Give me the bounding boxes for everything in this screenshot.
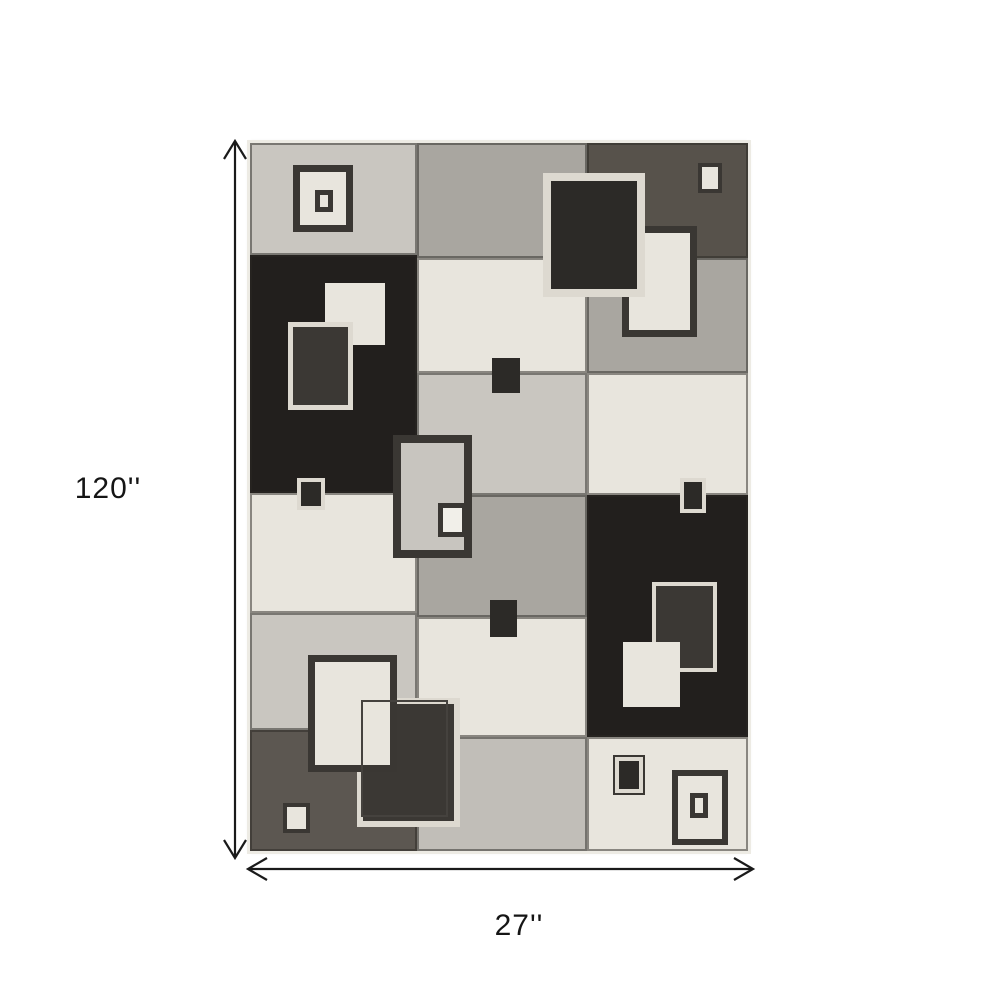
height-dimension-label: 120'': [48, 472, 168, 506]
rug-motif-square: [543, 173, 645, 297]
rug-motif-square: [623, 642, 680, 707]
rug-motif-square: [690, 793, 708, 818]
width-dimension-arrow: [248, 858, 753, 880]
rug-motif-square: [490, 600, 517, 637]
rug-motif-square: [698, 163, 722, 193]
rug-motif-square: [288, 322, 353, 410]
rug-motif-square: [615, 757, 643, 793]
rug-image: [250, 143, 748, 851]
rug-motif-square: [315, 190, 333, 212]
rug-motif-square: [680, 478, 706, 513]
rug-cell: [587, 373, 748, 495]
rug-motif-square: [361, 700, 448, 817]
rug-cell: [250, 493, 417, 613]
height-dimension-arrow: [224, 141, 246, 858]
rug-motif-square: [283, 803, 310, 833]
rug-motif-square: [393, 435, 472, 558]
rug-motif-square: [438, 503, 467, 537]
rug-motif-square: [492, 358, 520, 393]
width-dimension-label: 27'': [459, 909, 579, 943]
rug-motif-square: [297, 478, 325, 510]
rug-dimension-diagram: 120'' 27'': [0, 0, 1000, 1000]
